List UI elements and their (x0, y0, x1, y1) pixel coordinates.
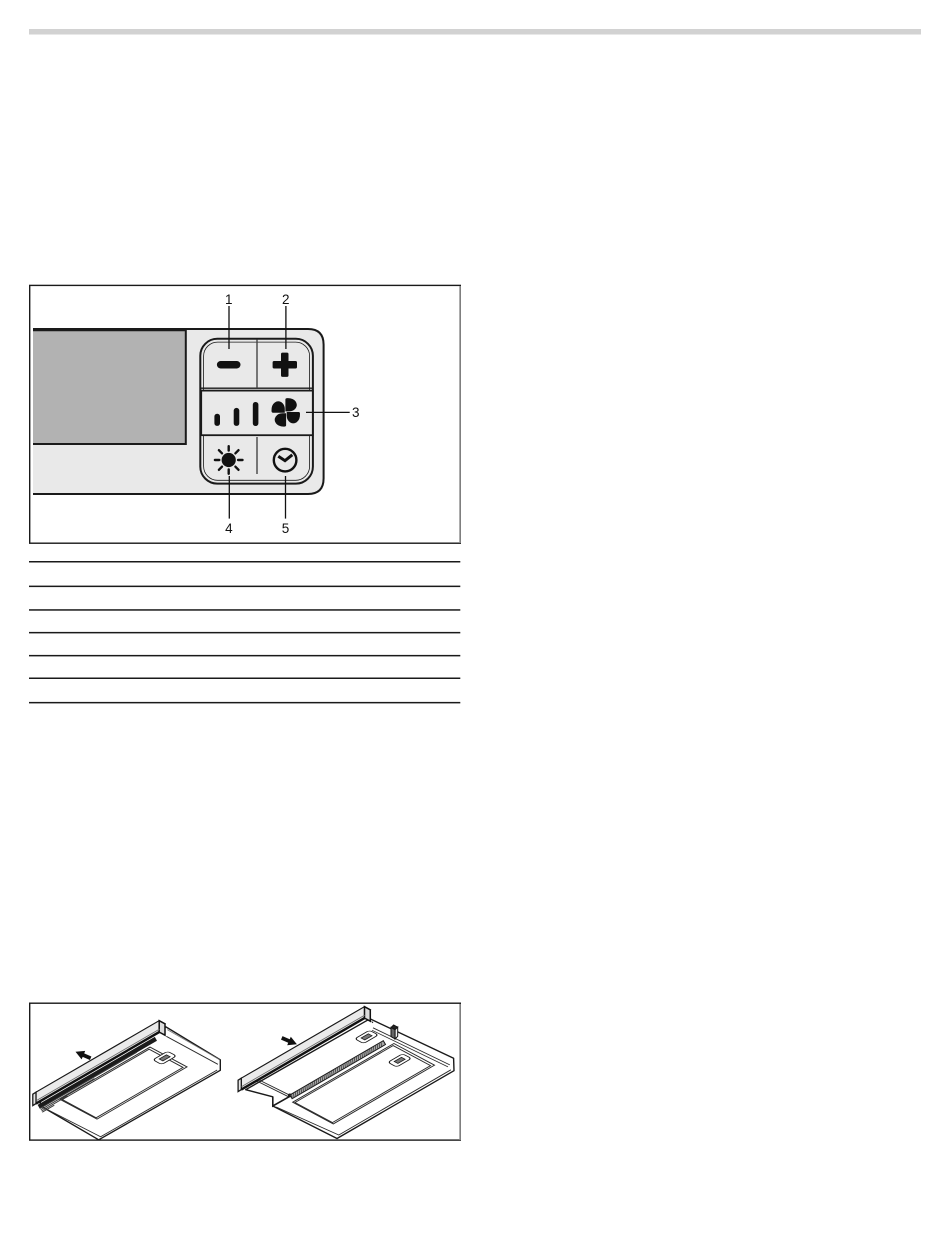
svg-text:5: 5 (282, 521, 290, 536)
svg-text:3: 3 (352, 405, 360, 420)
svg-text:4: 4 (225, 521, 233, 536)
svg-text:2: 2 (282, 292, 290, 307)
svg-text:1: 1 (225, 292, 233, 307)
